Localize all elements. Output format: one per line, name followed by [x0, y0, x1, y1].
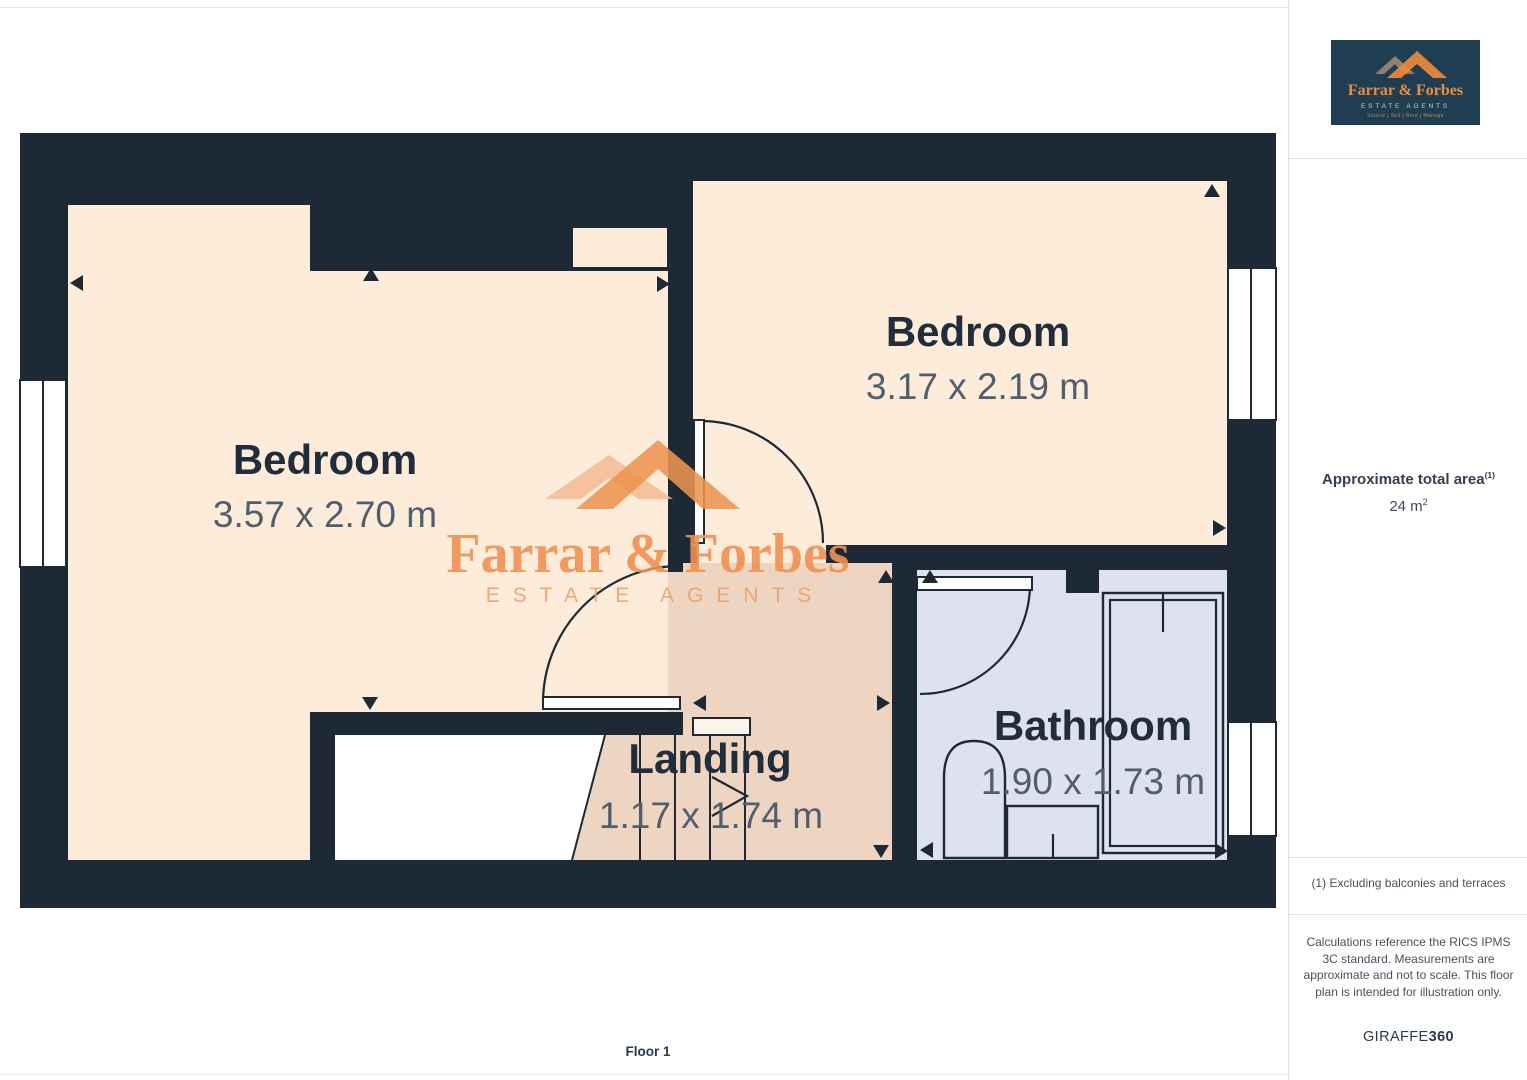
room-label: Bedroom — [233, 436, 417, 483]
agency-tagline: Source | Sell | Rent | Manage — [1367, 113, 1444, 119]
total-area-title-text: Approximate total area — [1322, 471, 1485, 488]
agency-name: Farrar & Forbes — [1348, 82, 1463, 100]
sidebar-divider — [1289, 158, 1527, 159]
total-area-value: 24 m2 — [1289, 497, 1527, 515]
provider-brand: GIRAFFE360 — [1289, 1029, 1527, 1045]
bathroom-wall-stub — [1066, 570, 1099, 593]
sidebar-divider — [1289, 857, 1527, 858]
info-sidebar: Farrar & Forbes ESTATE AGENTS Source | S… — [1288, 0, 1527, 1080]
agency-logo: Farrar & Forbes ESTATE AGENTS Source | S… — [1331, 40, 1480, 125]
room-label: Bathroom — [994, 702, 1192, 749]
roof-logo-icon — [1361, 46, 1451, 80]
agency-subtitle: ESTATE AGENTS — [1361, 103, 1450, 110]
watermark-wordmark: Farrar & Forbes — [446, 523, 849, 585]
room-dimensions: 1.90 x 1.73 m — [981, 761, 1205, 802]
provider-brand-suffix: 360 — [1429, 1029, 1454, 1045]
door-leaf-bedroom-1 — [543, 697, 680, 709]
total-area-section: Approximate total area(1) 24 m2 — [1289, 470, 1527, 515]
floor-label: Floor 1 — [560, 1044, 736, 1059]
total-area-title: Approximate total area(1) — [1289, 470, 1527, 488]
provider-brand-name: GIRAFFE — [1363, 1029, 1429, 1045]
stair-void — [335, 735, 605, 860]
room-label: Landing — [628, 735, 791, 782]
room-dimensions: 3.57 x 2.70 m — [213, 494, 437, 535]
sidebar-divider — [1289, 914, 1527, 915]
total-area-title-superscript: (1) — [1485, 470, 1495, 480]
total-area-value-text: 24 m — [1389, 498, 1422, 515]
room-dimensions: 3.17 x 2.19 m — [866, 366, 1090, 407]
area-footnote: (1) Excluding balconies and terraces — [1289, 876, 1527, 890]
room-label: Bedroom — [886, 308, 1070, 355]
watermark-subtitle: ESTATE AGENTS — [486, 584, 825, 607]
room-dimensions: 1.17 x 1.74 m — [599, 795, 823, 836]
disclaimer-text: Calculations reference the RICS IPMS 3C … — [1303, 934, 1514, 1000]
stair-top-step — [693, 718, 750, 735]
floorplan-page: Farrar & Forbes ESTATE AGENTS Bedroom 3.… — [0, 0, 1527, 1080]
total-area-value-superscript: 2 — [1423, 497, 1428, 507]
